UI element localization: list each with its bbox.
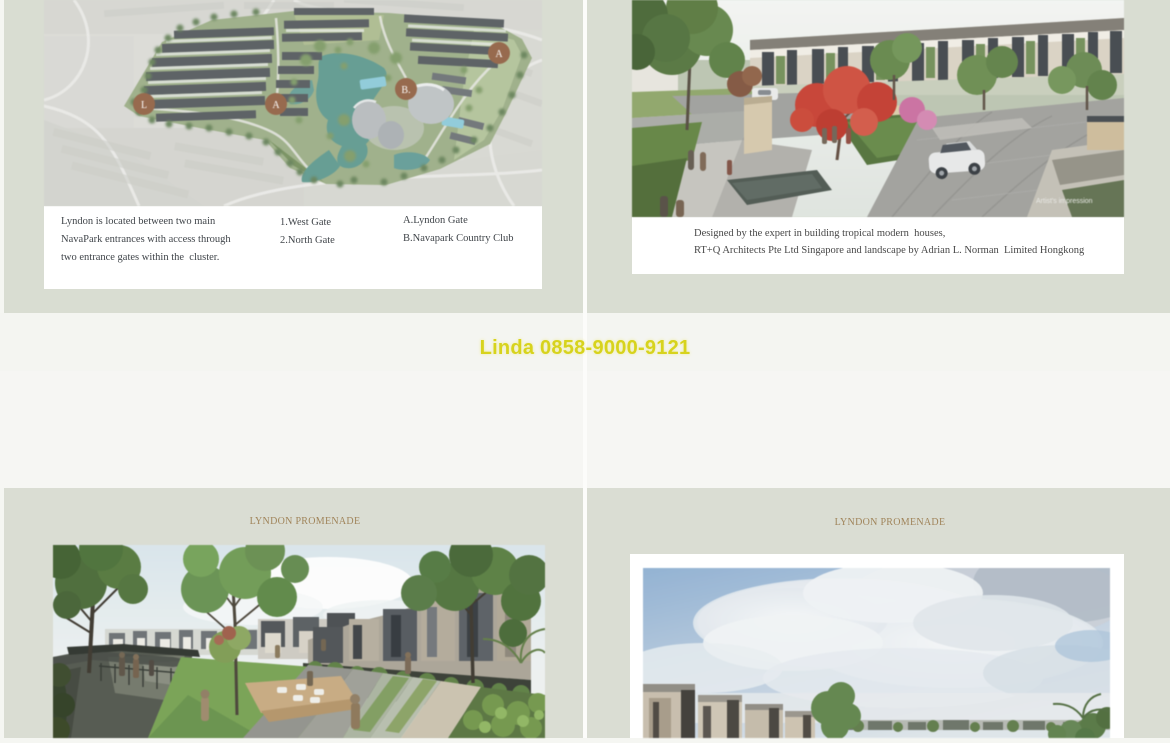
svg-text:L: L — [141, 100, 147, 111]
svg-text:A: A — [495, 49, 503, 60]
svg-text:B.: B. — [401, 85, 410, 96]
svg-text:A: A — [272, 100, 280, 111]
